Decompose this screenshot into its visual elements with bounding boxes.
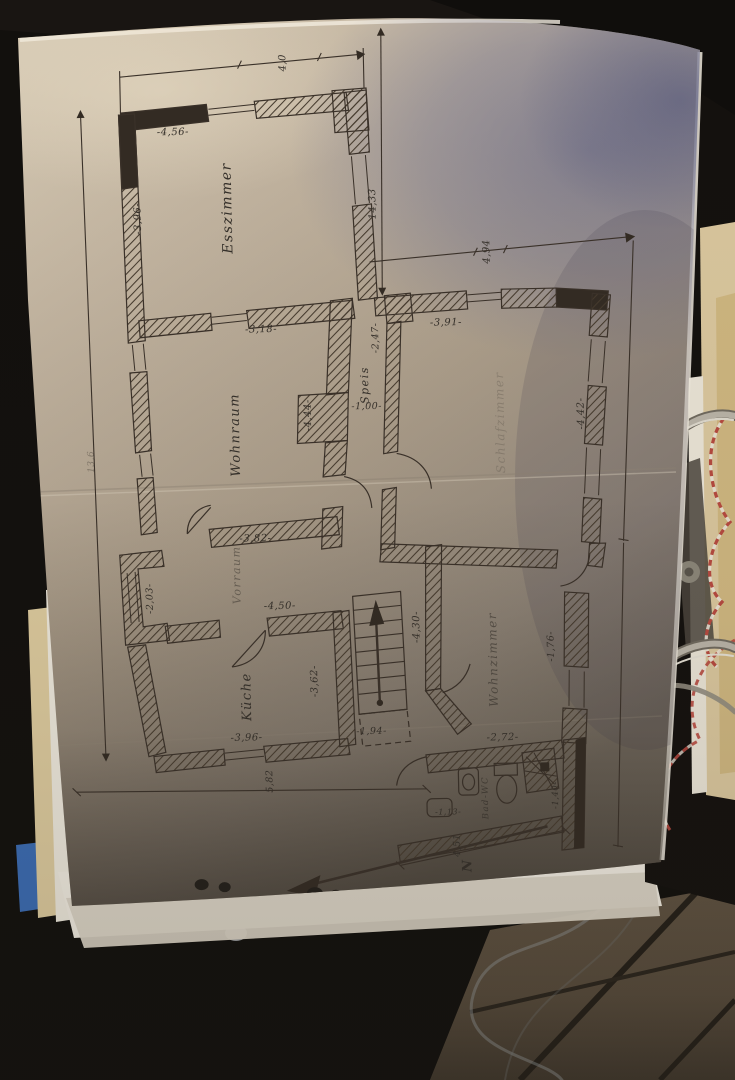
scene-svg: Esszimmer Wohnraum Schlafzimmer Speis Vo… bbox=[0, 0, 735, 1080]
photo-scene: Esszimmer Wohnraum Schlafzimmer Speis Vo… bbox=[0, 0, 735, 1080]
photo-vignette bbox=[0, 0, 735, 1080]
